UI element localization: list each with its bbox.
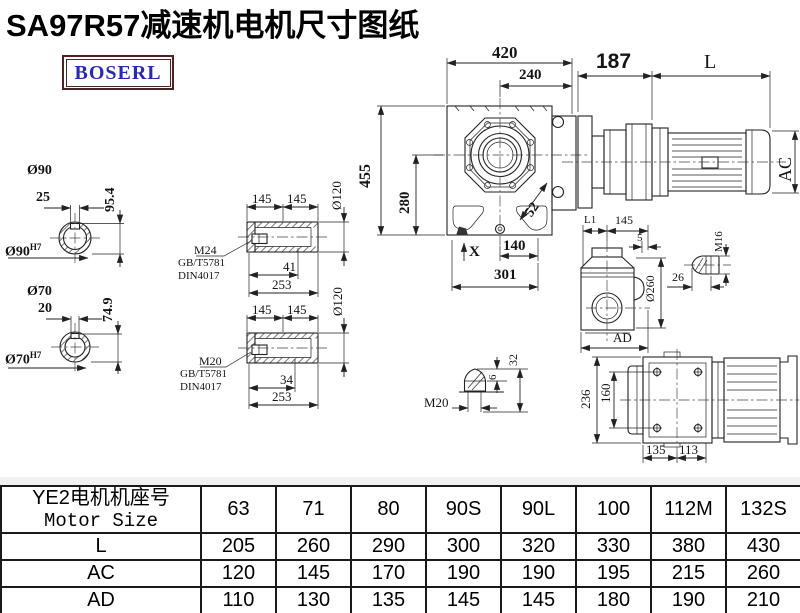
dim-bushing-m24-standard1: GB/T5781 xyxy=(178,258,225,269)
dim-bolt16-length: 26 xyxy=(672,271,684,283)
table-col-7: 132S xyxy=(726,486,800,533)
dim-front-inner-width: 240 xyxy=(519,68,542,83)
dim-bushing-m20-standard1: GB/T5781 xyxy=(180,369,227,380)
dim-rear-w1: 135 xyxy=(646,443,666,456)
table-cell: 110 xyxy=(201,587,276,613)
dim-bushing-m24-thread-depth: 41 xyxy=(283,260,296,273)
table-header-row: YE2电机机座号 Motor Size 63 71 80 90S 90L 100… xyxy=(1,486,800,533)
divider xyxy=(0,477,800,485)
table-row-AC: AC 120 145 170 190 190 195 215 260 xyxy=(1,560,800,587)
dim-shaft90-bore-value: Ø90 xyxy=(5,245,30,260)
dim-front-mark-x: X xyxy=(469,245,480,260)
table-row-label-L: L xyxy=(1,533,201,560)
table-cell: 180 xyxy=(576,587,651,613)
dim-front-width: 420 xyxy=(492,44,518,61)
table-cell: 320 xyxy=(501,533,576,560)
dim-shaft90-keyway-width: 25 xyxy=(36,191,50,205)
table-cell: 380 xyxy=(651,533,726,560)
dim-bolt16-thread: M16 xyxy=(714,231,725,252)
table-cell: 135 xyxy=(351,587,426,613)
dim-bushing-m24-standard2: DIN4017 xyxy=(178,271,220,282)
motor-size-table: YE2电机机座号 Motor Size 63 71 80 90S 90L 100… xyxy=(0,485,800,613)
table-cell: 260 xyxy=(276,533,351,560)
table-cell: 130 xyxy=(276,587,351,613)
table-cell: 190 xyxy=(501,560,576,587)
dim-side-flange-dia: Ø260 xyxy=(644,275,656,302)
dim-bushing-m24-thread: M24 xyxy=(194,244,217,256)
dim-shaft90-keyway-height: 95.4 xyxy=(104,188,118,213)
table-cell: 210 xyxy=(726,587,800,613)
dim-shaft70-keyway-width: 20 xyxy=(38,302,52,316)
dim-shaft70-diameter: Ø70 xyxy=(27,285,52,299)
table-row-AD: AD 110 130 135 145 145 180 190 210 xyxy=(1,587,800,613)
table-header-en: Motor Size xyxy=(2,510,200,532)
dim-bushing-m24-len1: 145 xyxy=(252,192,272,205)
table-col-4: 90L xyxy=(501,486,576,533)
table-cell: 190 xyxy=(651,587,726,613)
dim-bushing-m20-thread: M20 xyxy=(199,355,222,367)
dim-bolt20-6: 6 xyxy=(488,375,499,381)
dim-shaft90-bore-tolerance: H7 xyxy=(30,242,42,252)
table-header-motor-size: YE2电机机座号 Motor Size xyxy=(1,486,201,533)
dim-shaft70-bore-value: Ø70 xyxy=(5,353,30,368)
table-cell: 205 xyxy=(201,533,276,560)
table-cell: 290 xyxy=(351,533,426,560)
dim-bolt20-32: 32 xyxy=(507,354,519,366)
dim-shaft70-keyway-height: 74.9 xyxy=(102,298,116,323)
table-col-5: 100 xyxy=(576,486,651,533)
table-row-label-AC: AC xyxy=(1,560,201,587)
table-cell: 145 xyxy=(276,560,351,587)
dim-bushing-m24-outer-dia: Ø120 xyxy=(330,181,343,210)
table-cell: 195 xyxy=(576,560,651,587)
dim-front-height: 455 xyxy=(358,164,374,188)
dim-side-ad: AD xyxy=(613,331,632,344)
technical-drawing-canvas xyxy=(0,0,800,480)
table-col-3: 90S xyxy=(426,486,501,533)
dim-bushing-m24-len2: 145 xyxy=(287,192,307,205)
dim-side-width: 145 xyxy=(615,214,633,226)
dim-shaft70-bore-tolerance: H7 xyxy=(30,350,42,360)
dim-motor-length: L xyxy=(704,52,716,72)
table-cell: 170 xyxy=(351,560,426,587)
dim-side-l1: L1 xyxy=(584,215,596,226)
dim-shaft70-bore: Ø70H7 xyxy=(5,351,41,368)
table-cell: 330 xyxy=(576,533,651,560)
dim-front-foot: 140 xyxy=(503,239,526,254)
dim-rear-bolt-spacing: 160 xyxy=(599,384,612,404)
dim-side-offset: 5 xyxy=(637,233,643,244)
dim-motor-diameter: AC xyxy=(776,157,794,182)
dim-front-base: 301 xyxy=(494,268,517,283)
dim-bushing-m20-standard2: DIN4017 xyxy=(180,382,222,393)
table-cell: 215 xyxy=(651,560,726,587)
table-col-6: 112M xyxy=(651,486,726,533)
dim-bushing-m20-len2: 145 xyxy=(287,303,307,316)
table-cell: 300 xyxy=(426,533,501,560)
dim-bushing-m20-thread-depth: 34 xyxy=(280,373,293,386)
table-col-1: 71 xyxy=(276,486,351,533)
dim-bushing-m20-outer-dia: Ø120 xyxy=(331,287,344,316)
table-cell: 260 xyxy=(726,560,800,587)
dim-rear-height: 236 xyxy=(579,390,592,410)
dim-front-center-height: 280 xyxy=(398,192,413,215)
dim-bolt20-thread: M20 xyxy=(424,396,449,409)
dim-shaft90-bore: Ø90H7 xyxy=(5,243,41,260)
dim-bushing-m20-total-len: 253 xyxy=(272,390,292,403)
dim-bushing-m20-len1: 145 xyxy=(252,303,272,316)
table-cell: 145 xyxy=(426,587,501,613)
table-col-2: 80 xyxy=(351,486,426,533)
page: SA97R57减速机电机尺寸图纸 BOSERL xyxy=(0,0,800,613)
table-header-cn: YE2电机机座号 xyxy=(2,487,200,510)
table-cell: 120 xyxy=(201,560,276,587)
table-cell: 190 xyxy=(426,560,501,587)
table-cell: 430 xyxy=(726,533,800,560)
table-col-0: 63 xyxy=(201,486,276,533)
dim-shaft90-diameter: Ø90 xyxy=(27,164,52,178)
gearbox-front-view-drawing xyxy=(377,58,590,291)
table-row-label-AD: AD xyxy=(1,587,201,613)
table-cell: 145 xyxy=(501,587,576,613)
dim-rear-w2: 113 xyxy=(679,443,698,456)
motor-side-view-drawing xyxy=(562,71,799,208)
dim-motor-adapter: 187 xyxy=(596,51,631,72)
dim-bushing-m24-total-len: 253 xyxy=(272,278,292,291)
table-row-L: L 205 260 290 300 320 330 380 430 xyxy=(1,533,800,560)
